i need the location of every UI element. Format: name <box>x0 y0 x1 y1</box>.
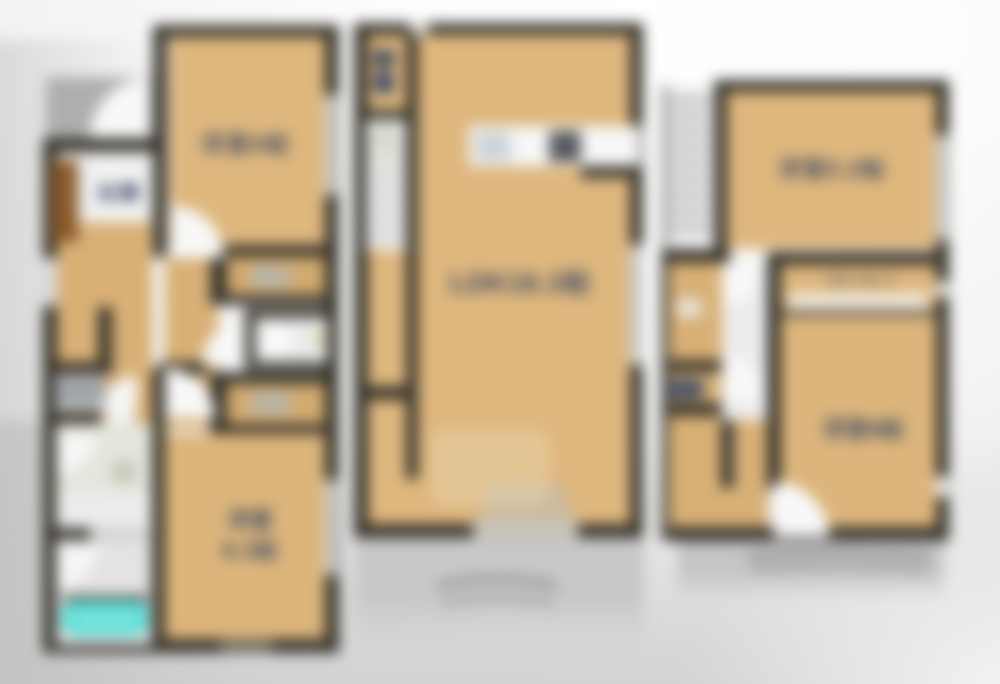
svg-text:洋室: 洋室 <box>227 507 273 533</box>
svg-text:6.1帖: 6.1帖 <box>223 537 278 563</box>
svg-text:クローゼット: クローゼット <box>825 273 897 288</box>
svg-text:洋室6帖: 洋室6帖 <box>822 416 904 442</box>
svg-text:LDK16.1帖: LDK16.1帖 <box>450 267 590 298</box>
svg-text:洋室6帖: 洋室6帖 <box>201 131 291 157</box>
svg-text:玄関: 玄関 <box>96 181 140 206</box>
svg-text:洋室5.2帖: 洋室5.2帖 <box>779 156 886 182</box>
